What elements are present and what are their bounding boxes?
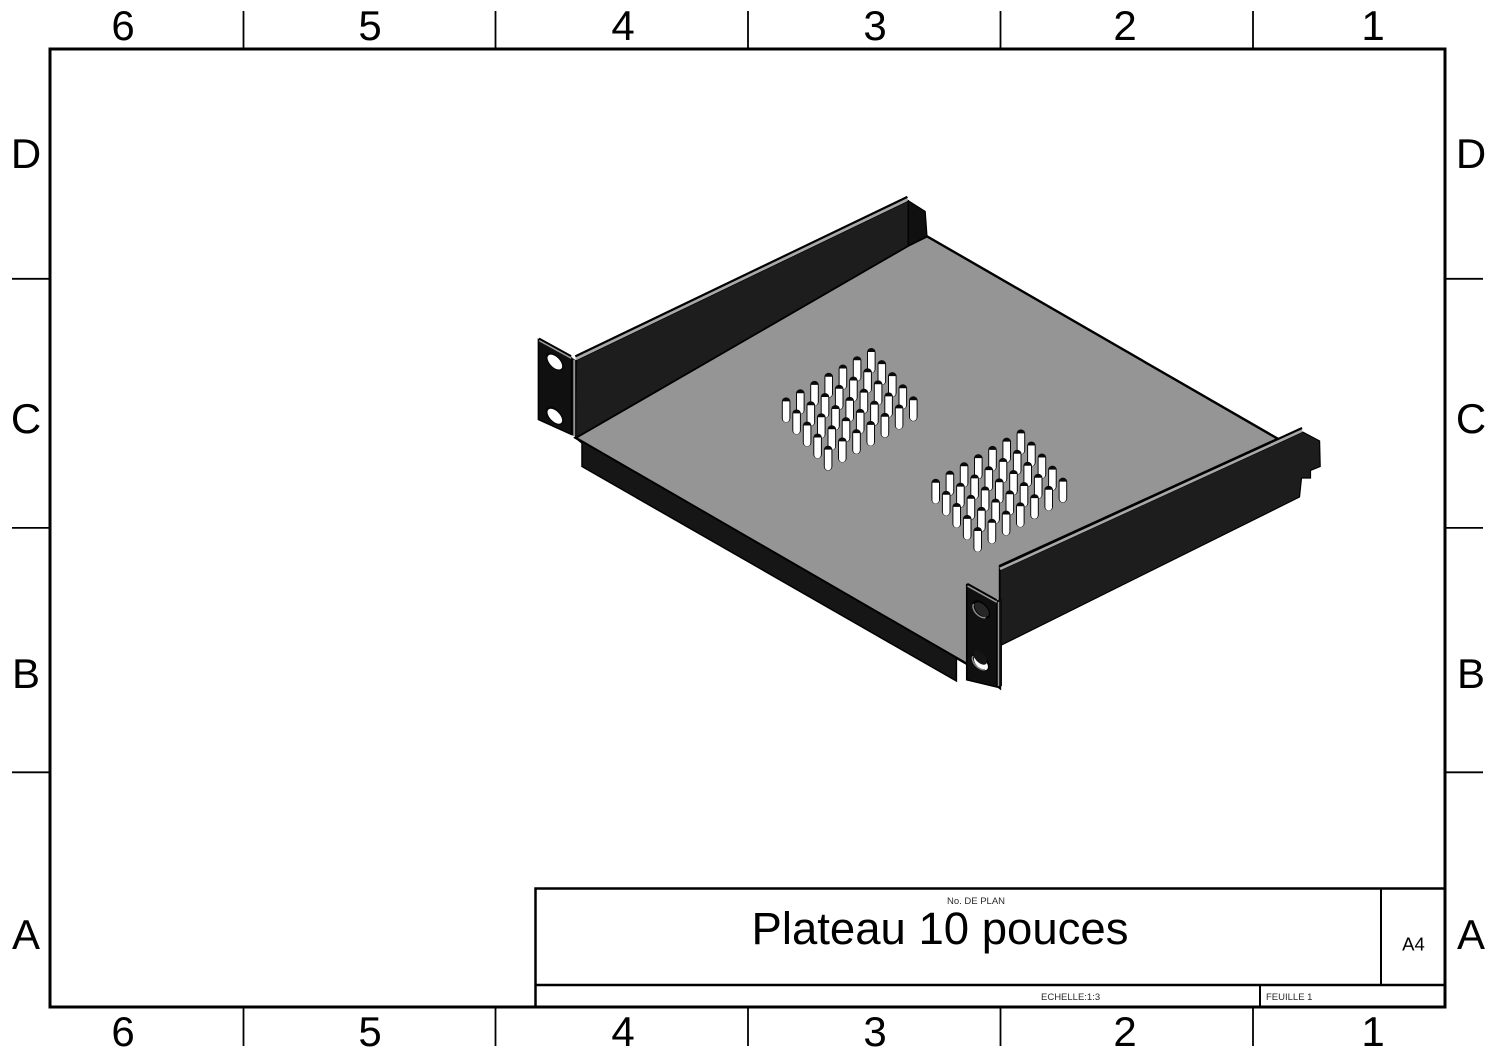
svg-text:A4: A4	[1402, 934, 1425, 955]
svg-text:FEUILLE 1: FEUILLE 1	[1266, 992, 1312, 1003]
svg-text:4: 4	[611, 2, 634, 49]
svg-text:ECHELLE:1:3: ECHELLE:1:3	[1041, 992, 1100, 1003]
svg-text:C: C	[1456, 395, 1486, 442]
svg-text:5: 5	[358, 2, 381, 49]
svg-text:1: 1	[1361, 1008, 1384, 1055]
svg-text:5: 5	[358, 1008, 381, 1055]
svg-text:1: 1	[1361, 2, 1384, 49]
svg-text:6: 6	[111, 2, 134, 49]
svg-text:B: B	[1457, 650, 1485, 697]
svg-text:D: D	[1456, 130, 1486, 177]
svg-text:4: 4	[611, 1008, 634, 1055]
svg-text:3: 3	[863, 2, 886, 49]
svg-text:D: D	[11, 130, 41, 177]
svg-text:C: C	[11, 395, 41, 442]
svg-text:2: 2	[1113, 2, 1136, 49]
svg-text:B: B	[12, 650, 40, 697]
svg-text:6: 6	[111, 1008, 134, 1055]
svg-text:A: A	[12, 911, 40, 958]
svg-text:2: 2	[1113, 1008, 1136, 1055]
svg-text:Plateau 10 pouces: Plateau 10 pouces	[752, 903, 1129, 954]
svg-text:3: 3	[863, 1008, 886, 1055]
svg-text:A: A	[1457, 911, 1485, 958]
